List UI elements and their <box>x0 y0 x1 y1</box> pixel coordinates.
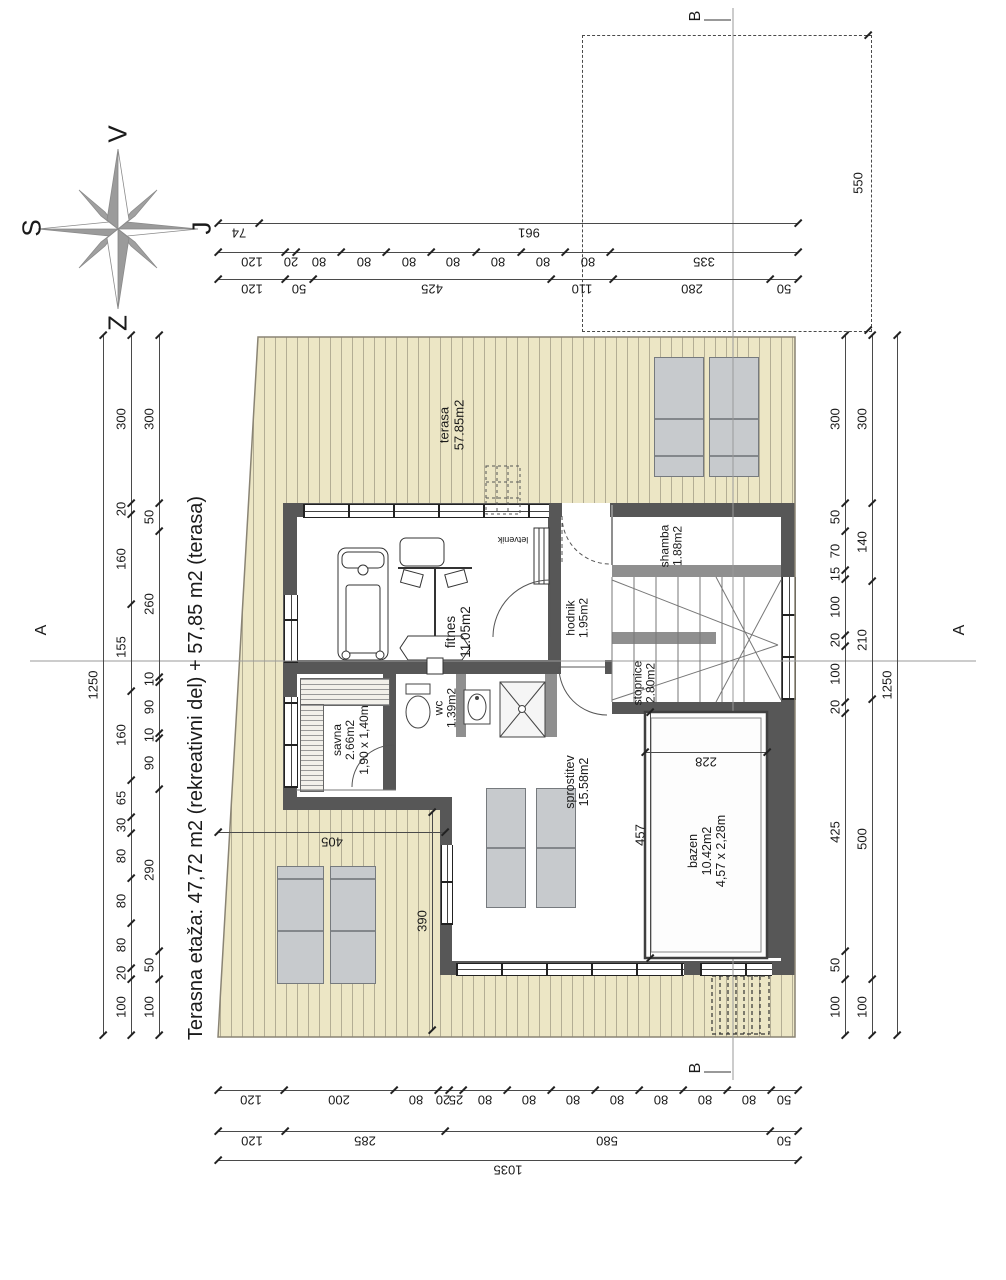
dim-top-row2-value: 120 <box>241 255 263 270</box>
dim-bottom-row1-value: 80 <box>521 1093 535 1108</box>
dim-pool-228-value: 228 <box>695 755 717 770</box>
dim-plot-550-value: 550 <box>851 172 866 194</box>
dim-top-row1-line <box>218 223 798 224</box>
section-b-bottom-line: B <box>687 1063 705 1074</box>
compass-z: Z <box>103 315 132 331</box>
dim-left-inner-value: 260 <box>142 593 157 615</box>
dim-bottom-row1-value: 80 <box>697 1093 711 1108</box>
dim-top-row3-line <box>218 279 798 280</box>
compass-j: J <box>187 222 216 235</box>
dim-top-row3-value: 50 <box>292 282 306 297</box>
section-a-right: A <box>951 625 969 636</box>
dim-bottom-row2-line <box>218 1131 798 1132</box>
label-bazen-line: 10.42m2 <box>700 815 714 887</box>
label-stopnice-line: 2.80m2 <box>645 661 658 706</box>
dim-terrace-390-value: 390 <box>415 910 430 932</box>
dim-top-row2-value: 80 <box>312 255 326 270</box>
treadmill <box>338 548 388 660</box>
compass-s-line: S <box>17 219 46 236</box>
section-a-left-line: A <box>33 625 51 636</box>
dim-top-row1-value: 74 <box>231 226 245 241</box>
label-savna: savna2.66m21,90 x 1,40m <box>331 705 371 774</box>
floor-plan-canvas: terasa57.85m2fitnes11.05m2hodnik1.95m2sh… <box>0 0 1006 1280</box>
dim-right-inner-value: 425 <box>828 821 843 843</box>
compass-v: V <box>103 125 132 142</box>
dim-right-inner-value: 100 <box>828 996 843 1018</box>
dim-top-row2-value: 80 <box>581 255 595 270</box>
dim-left-inner-value: 290 <box>142 859 157 881</box>
dim-right-mid-value: 300 <box>855 408 870 430</box>
dim-left-mid-value: 155 <box>114 636 129 658</box>
label-wc: wc1.39m2 <box>433 688 460 728</box>
shower <box>500 682 545 737</box>
dim-top-row2-value: 80 <box>401 255 415 270</box>
dim-bottom-row2-value: 580 <box>597 1134 619 1149</box>
dim-left-mid-value: 80 <box>114 849 129 863</box>
label-bazen-line: 4,57 x 2,28m <box>714 815 728 887</box>
dim-top-row2-value: 80 <box>491 255 505 270</box>
dim-top-row2-value: 20 <box>284 255 298 270</box>
dim-bottom-row1-value: 80 <box>609 1093 623 1108</box>
label-hodnik-line: 1.95m2 <box>578 598 591 638</box>
label-sprostitev-line: 15.58m2 <box>577 755 591 809</box>
label-savna-line: savna <box>331 705 344 774</box>
dim-left-inner-value: 90 <box>142 700 157 714</box>
label-bazen-line: bazen <box>686 815 700 887</box>
plan-title-line: Terasna etaža: 47,72 m2 (rekreativni del… <box>185 496 207 1040</box>
label-wc-line: wc <box>433 688 446 728</box>
dim-right-inner-value: 20 <box>828 633 843 647</box>
section-b-top: B <box>687 11 705 22</box>
sink <box>464 690 490 724</box>
dim-right-inner-value: 300 <box>828 408 843 430</box>
dim-right-total-line <box>897 335 898 1035</box>
label-savna-line: 2.66m2 <box>344 705 357 774</box>
dim-right-inner-value: 50 <box>828 958 843 972</box>
dim-pool-457-value: 457 <box>633 824 648 846</box>
dim-right-mid-value: 500 <box>855 828 870 850</box>
section-b-bottom: B <box>687 1063 705 1074</box>
dim-left-inner-value: 300 <box>142 408 157 430</box>
label-fitnes-line: 11.05m2 <box>458 606 473 658</box>
dim-right-inner-value: 50 <box>828 510 843 524</box>
dim-bottom-row1-value: 80 <box>741 1093 755 1108</box>
label-stopnice-line: stopnice <box>632 661 645 706</box>
dim-top-row2-value: 80 <box>356 255 370 270</box>
dim-bottom-row3-value: 1035 <box>494 1163 523 1178</box>
dim-top-row1-value: 961 <box>518 226 540 241</box>
dim-left-mid-value: 30 <box>114 818 129 832</box>
label-hodnik: hodnik1.95m2 <box>565 598 592 638</box>
dim-bottom-row1-value: 120 <box>240 1093 262 1108</box>
dim-right-mid-value: 140 <box>855 531 870 553</box>
dim-left-inner-value: 90 <box>142 756 157 770</box>
section-a-right-line: A <box>951 625 969 636</box>
label-sprostitev: sprostitev15.58m2 <box>563 755 591 809</box>
dim-left-mid-value: 160 <box>114 548 129 570</box>
dim-pool-228-line <box>645 752 767 753</box>
dim-right-mid-line <box>872 335 873 1035</box>
dim-top-row3-value: 425 <box>421 282 443 297</box>
dim-bottom-row1-value: 50 <box>777 1093 791 1108</box>
dim-right-inner-value: 20 <box>828 700 843 714</box>
dim-bottom-row1-value: 80 <box>409 1093 423 1108</box>
dim-top-row2-value: 335 <box>693 255 715 270</box>
dim-left-mid-value: 20 <box>114 501 129 515</box>
dim-bottom-row2-value: 50 <box>777 1134 791 1149</box>
dim-terrace-405-line <box>218 832 445 833</box>
label-bazen: bazen10.42m24,57 x 2,28m <box>686 815 728 887</box>
dim-bottom-row2-value: 120 <box>241 1134 263 1149</box>
dim-left-mid-value: 300 <box>114 408 129 430</box>
dim-left-inner-value: 10 <box>142 728 157 742</box>
dim-bottom-row1-value: 80 <box>653 1093 667 1108</box>
dim-left-mid-value: 100 <box>114 996 129 1018</box>
dim-left-inner-value: 10 <box>142 672 157 686</box>
label-shamba: shamba1.88m2 <box>659 525 686 568</box>
dim-right-total-value: 1250 <box>880 671 895 700</box>
dim-right-inner-value: 100 <box>828 596 843 618</box>
dim-top-row2-value: 80 <box>446 255 460 270</box>
section-b-top-line: B <box>687 11 705 22</box>
dim-left-inner-line <box>159 335 160 1035</box>
dim-terrace-390-line <box>432 812 433 1030</box>
dim-bottom-row2-value: 285 <box>354 1134 376 1149</box>
dim-pool-457-line <box>650 712 651 958</box>
dim-right-inner-value: 15 <box>828 567 843 581</box>
dim-bottom-row1-value: 80 <box>477 1093 491 1108</box>
dim-left-mid-value: 80 <box>114 893 129 907</box>
label-stopnice: stopnice2.80m2 <box>632 661 659 706</box>
dim-left-total-value: 1250 <box>86 671 101 700</box>
label-terasa: terasa57.85m2 <box>437 400 466 451</box>
dim-left-inner-value: 100 <box>142 996 157 1018</box>
dim-right-inner-value: 70 <box>828 543 843 557</box>
dim-top-row3-value: 120 <box>241 282 263 297</box>
label-savna-line: 1,90 x 1,40m <box>358 705 371 774</box>
compass-s: S <box>17 219 46 236</box>
label-terasa-line: 57.85m2 <box>452 400 467 451</box>
dim-top-row3-value: 110 <box>572 282 593 297</box>
grate-north <box>486 466 520 514</box>
dim-left-mid-value: 160 <box>114 725 129 747</box>
dim-left-mid-value: 20 <box>114 966 129 980</box>
label-terasa-line: terasa <box>437 400 452 451</box>
dim-bottom-row1-line <box>218 1090 798 1091</box>
dim-bottom-row1-value: 200 <box>328 1093 350 1108</box>
label-hodnik-line: hodnik <box>565 598 578 638</box>
dim-left-mid-line <box>131 335 132 1035</box>
label-shamba-line: 1.88m2 <box>672 525 685 568</box>
dim-terrace-405-value: 405 <box>321 835 343 850</box>
label-sprostitev-line: sprostitev <box>563 755 577 809</box>
dim-top-row3-value: 50 <box>777 282 791 297</box>
section-a-left: A <box>33 625 51 636</box>
dim-left-inner-value: 50 <box>142 958 157 972</box>
label-letvenik: letvenik <box>498 535 529 545</box>
compass-z-line: Z <box>103 315 132 331</box>
dim-left-mid-value: 80 <box>114 938 129 952</box>
toilet <box>406 684 430 728</box>
label-shamba-line: shamba <box>659 525 672 568</box>
dim-left-total-line <box>103 335 104 1035</box>
label-wc-line: 1.39m2 <box>446 688 459 728</box>
plan-title: Terasna etaža: 47,72 m2 (rekreativni del… <box>185 496 207 1040</box>
dim-top-row2-line <box>218 252 798 253</box>
dim-top-row2-value: 80 <box>536 255 550 270</box>
label-fitnes-line: fitnes <box>443 606 458 658</box>
dim-right-inner-line <box>845 335 846 1035</box>
compass-j-line: J <box>187 222 216 235</box>
door-swings <box>352 516 610 787</box>
dim-right-mid-value: 100 <box>855 996 870 1018</box>
grate-south <box>712 976 769 1034</box>
dim-bottom-row1-value: 25 <box>449 1093 463 1108</box>
dim-bottom-row1-value: 80 <box>565 1093 579 1108</box>
dim-right-mid-value: 210 <box>855 629 870 651</box>
label-letvenik-line: letvenik <box>498 535 529 545</box>
letvenik-wall-bars <box>534 528 549 584</box>
compass-v-line: V <box>103 125 132 142</box>
dim-bottom-row3-line <box>218 1160 798 1161</box>
label-fitnes: fitnes11.05m2 <box>443 606 473 658</box>
dim-left-mid-value: 65 <box>114 791 129 805</box>
compass-rose <box>38 149 198 309</box>
dim-top-row3-value: 280 <box>681 282 703 297</box>
dim-right-inner-value: 100 <box>828 663 843 685</box>
dim-left-inner-value: 50 <box>142 510 157 524</box>
